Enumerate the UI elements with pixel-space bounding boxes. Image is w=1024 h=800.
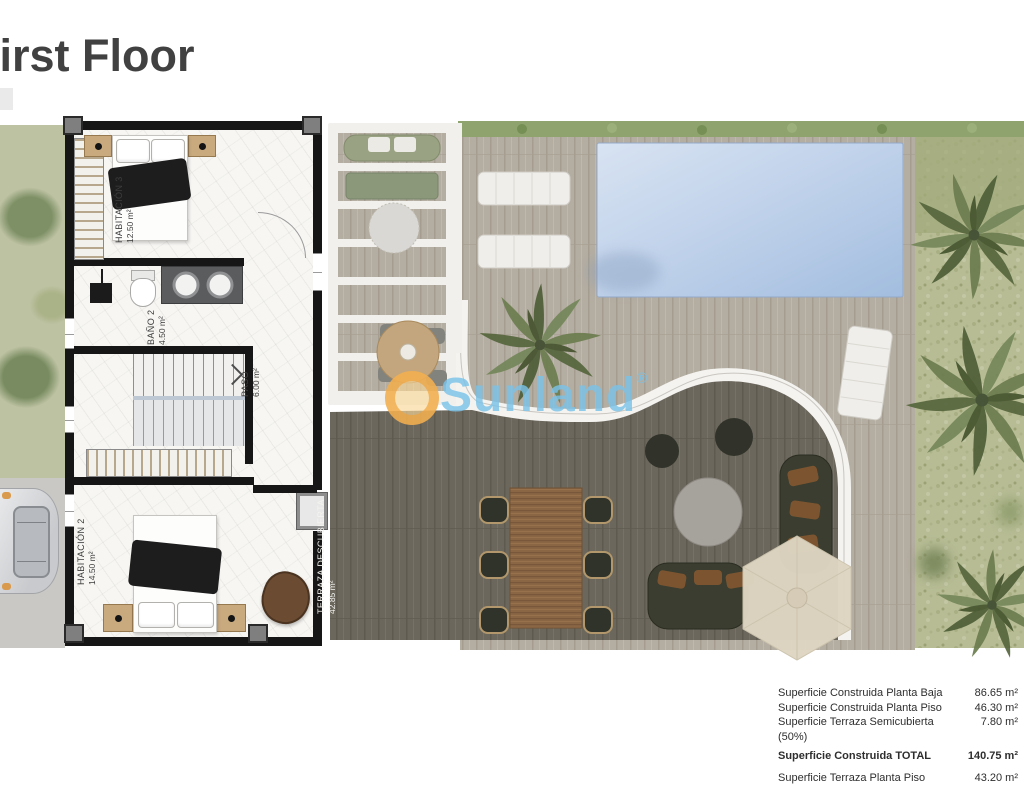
outdoor-sofa: [344, 135, 440, 161]
wall: [68, 121, 318, 130]
bathroom-vanity: [161, 266, 243, 304]
terrace-dining-set: [480, 488, 612, 633]
pillar: [248, 624, 268, 643]
round-rug: [369, 203, 419, 253]
surface-area-table: Superficie Construida Planta Baja 86.65 …: [778, 686, 1018, 786]
sun-lounger: [478, 172, 570, 205]
garden-terrace-svg: [322, 120, 1024, 665]
wall: [74, 477, 254, 485]
table-row: Superficie Construida Planta Baja 86.65 …: [778, 686, 1018, 701]
floor-plan-page: First Floor: [0, 0, 1024, 800]
pergola: [328, 123, 462, 405]
garden-grass-left: [0, 125, 65, 478]
nightstand: [84, 135, 112, 157]
page-title: First Floor: [0, 30, 195, 82]
table-row: Superficie Terraza Semicubierta (50%) 7.…: [778, 715, 1018, 744]
bush: [919, 548, 949, 578]
wall: [74, 346, 252, 354]
edge-artifact: [0, 88, 13, 110]
floor-plan: HABITACIÓN 3 12.50 m² BAÑO 2 4.50 m² PAS…: [0, 120, 1024, 680]
pouf: [715, 418, 753, 456]
room-label-habitacion-3: HABITACIÓN 3 12.50 m²: [114, 176, 136, 243]
sun-lounger: [478, 235, 570, 268]
bush: [997, 499, 1023, 525]
table-row-total: Superficie Construida TOTAL 140.75 m²: [778, 749, 1018, 764]
parked-car: [0, 488, 59, 594]
nightstand: [216, 604, 246, 632]
room-label-habitacion-2: HABITACIÓN 2 14.50 m²: [76, 518, 98, 585]
room-label-bano-2: BAÑO 2 4.50 m²: [146, 310, 168, 345]
wall: [245, 346, 253, 464]
wall: [65, 121, 74, 646]
pillar: [302, 116, 322, 135]
pillar: [64, 624, 84, 643]
window: [65, 494, 74, 527]
room-label-terraza: TERRAZA DESCUBIERTA 42.85 m²: [316, 499, 338, 614]
pergola-dining-set: [377, 321, 447, 386]
outdoor-bench: [346, 173, 438, 199]
pillar: [63, 116, 83, 135]
door-swing-arc: [258, 212, 306, 258]
armchair: [255, 566, 317, 630]
shower-fixture: [90, 283, 112, 303]
pouf: [645, 434, 679, 468]
window: [65, 406, 74, 433]
table-row: Superficie Terraza Planta Piso 43.20 m²: [778, 771, 1018, 786]
bed-habitacion-2: [133, 515, 217, 633]
hedge: [458, 121, 1024, 137]
nightstand: [188, 135, 216, 157]
window: [313, 253, 322, 291]
table-row: Superficie Construida Planta Piso 46.30 …: [778, 701, 1018, 716]
wall: [65, 637, 322, 646]
nightstand: [103, 604, 133, 632]
car-light: [2, 583, 11, 590]
house-first-floor: [65, 121, 322, 646]
wardrobe: [86, 449, 232, 477]
toilet: [129, 270, 155, 306]
car-roof: [13, 506, 50, 578]
wall: [253, 485, 317, 493]
window: [65, 318, 74, 349]
round-table: [674, 478, 742, 546]
car-light: [2, 492, 11, 499]
room-label-paso: PASO 6.00 m²: [240, 368, 262, 397]
